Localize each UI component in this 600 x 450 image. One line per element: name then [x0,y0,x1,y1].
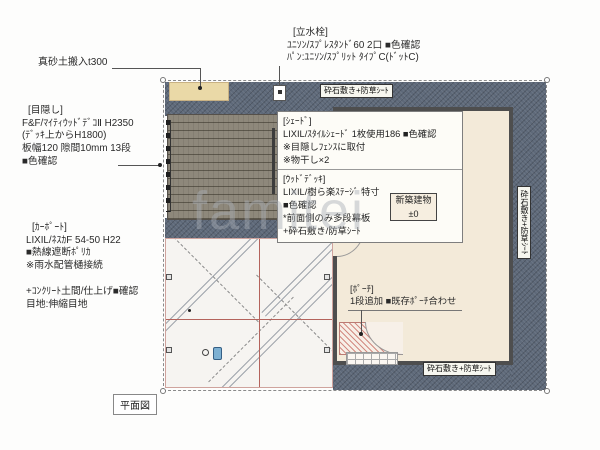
porch-marker-dot [359,332,363,336]
deck-edge-bar [272,128,275,194]
concrete-line: 目地:伸縮目地 [26,299,138,312]
porch-line: 1段追加 ■既存ﾎﾟｰﾁ合わせ [350,295,456,307]
gravel-label-top: 砕石敷き+防草ｼｰﾄ [320,84,393,98]
carport-diagonal-dashed-line [208,297,294,383]
concrete-line: +ｺﾝｸﾘｰﾄ土間/仕上げ■確認 [26,286,138,299]
spec-box-shade-deck: [ｼｪｰﾄﾞ] LIXIL/ｽﾀｲﾙｼｪｰﾄﾞ 1枚使用186 ■色確認 ※目隠… [277,111,463,243]
shade-line: ※目隠しﾌｪﾝｽに取付 [283,141,457,154]
privacy-leader-line [118,165,160,166]
privacy-line: (ﾃﾞｯｷ上からH1800) [22,130,134,143]
drain-circle-marker [202,349,209,356]
shade-line: LIXIL/ｽﾀｲﾙｼｪｰﾄﾞ 1枚使用186 ■色確認 [283,128,457,141]
building-level: ±0 [391,208,436,222]
tap-note: [立水栓] ﾕﾆｿﾝ/ｽﾌﾟﾚｽﾀﾝﾄﾞ60 2口 ■色確認 ﾊﾟﾝ:ﾕﾆｿﾝ/… [287,27,420,65]
carport-roof-line [203,264,333,388]
building-level-box: 新築建物 ±0 [390,193,437,221]
shade-line: ※物干し×2 [283,154,457,167]
porch-step [346,352,398,365]
plan-drawing-page: 砕石敷き+防草ｼｰﾄ 砕石敷き+防草ｼｰﾄ 砕石敷き+防草ｼｰﾄ [ｼｪｰﾄﾞ]… [0,0,600,450]
carport-line: ■熱線遮断ﾎﾟﾘｶ [26,247,121,260]
porch-leader-underline [348,310,462,311]
tap-heading: [立水栓] [293,27,420,40]
tap-line: ﾊﾟﾝ:ﾕﾆｿﾝ/ｽﾌﾟﾘｯﾄ ﾀｲﾌﾟC(ﾄﾞｯﾄC) [287,52,420,65]
gravel-label-right: 砕石敷き+防草ｼｰﾄ [517,186,531,259]
carport-post [324,274,330,280]
tap-leader-line [279,66,280,85]
privacy-marker-dot [158,163,162,167]
shade-heading: [ｼｪｰﾄﾞ] [283,115,457,128]
shade-spec-section: [ｼｪｰﾄﾞ] LIXIL/ｽﾀｲﾙｼｪｰﾄﾞ 1枚使用186 ■色確認 ※目隠… [278,112,462,169]
wood-deck-heading: [ｳｯﾄﾞﾃﾞｯｷ] [283,173,457,186]
building-name: 新築建物 [391,194,436,208]
porch-heading: [ﾎﾟｰﾁ] [350,283,456,295]
privacy-line: ■色確認 [22,156,134,169]
privacy-fence-line [166,120,171,212]
carport-roof-line [261,238,333,317]
masado-leader-underline [112,68,201,69]
carport-roof-line [165,238,261,342]
boundary-corner-marker [544,388,550,394]
privacy-fence-note: [目隠し] F&F/ﾏｲﾃｨｳｯﾄﾞﾃﾞｺⅡ H2350 (ﾃﾞｯｷ上からH18… [22,105,134,169]
masado-note: 真砂土搬入t300 [38,56,107,69]
point-marker [188,309,191,312]
carport-post [324,347,330,353]
masado-soil-area [169,82,229,101]
privacy-heading: [目隠し] [28,105,134,118]
gravel-label-bottom: 砕石敷き+防草ｼｰﾄ [423,362,496,376]
boundary-corner-marker [160,77,166,83]
boundary-corner-marker [160,388,166,394]
water-tap-icon [273,85,286,101]
carport-concrete-area [165,238,333,388]
porch-note: [ﾎﾟｰﾁ] 1段追加 ■既存ﾎﾟｰﾁ合わせ [350,283,456,307]
wood-deck-line: +砕石敷き/防草ｼｰﾄ [283,225,457,238]
privacy-line: F&F/ﾏｲﾃｨｳｯﾄﾞﾃﾞｺⅡ H2350 [22,118,134,131]
carport-heading: [ｶｰﾎﾟｰﾄ] [32,222,121,235]
masado-marker-dot [198,86,202,90]
carport-post [166,274,172,280]
drain-marker [213,347,222,360]
carport-note: [ｶｰﾎﾟｰﾄ] LIXIL/ﾈｽｶF 54-50 H22 ■熱線遮断ﾎﾟﾘｶ … [26,222,121,273]
masado-leader-line [200,68,201,88]
porch-leader-line [361,310,362,334]
expansion-joint-horizontal [166,319,332,320]
tap-line: ﾕﾆｿﾝ/ｽﾌﾟﾚｽﾀﾝﾄﾞ60 2口 ■色確認 [287,40,420,53]
boundary-corner-marker [544,77,550,83]
carport-post [166,347,172,353]
privacy-line: 板幅120 隙間10mm 13段 [22,143,134,156]
carport-line: LIXIL/ﾈｽｶF 54-50 H22 [26,235,121,248]
concrete-note: +ｺﾝｸﾘｰﾄ土間/仕上げ■確認 目地:伸縮目地 [26,286,138,311]
carport-line: ※雨水配管樋接続 [26,260,121,273]
expansion-joint-vertical [259,239,260,387]
drawing-title-label: 平面図 [113,394,157,415]
